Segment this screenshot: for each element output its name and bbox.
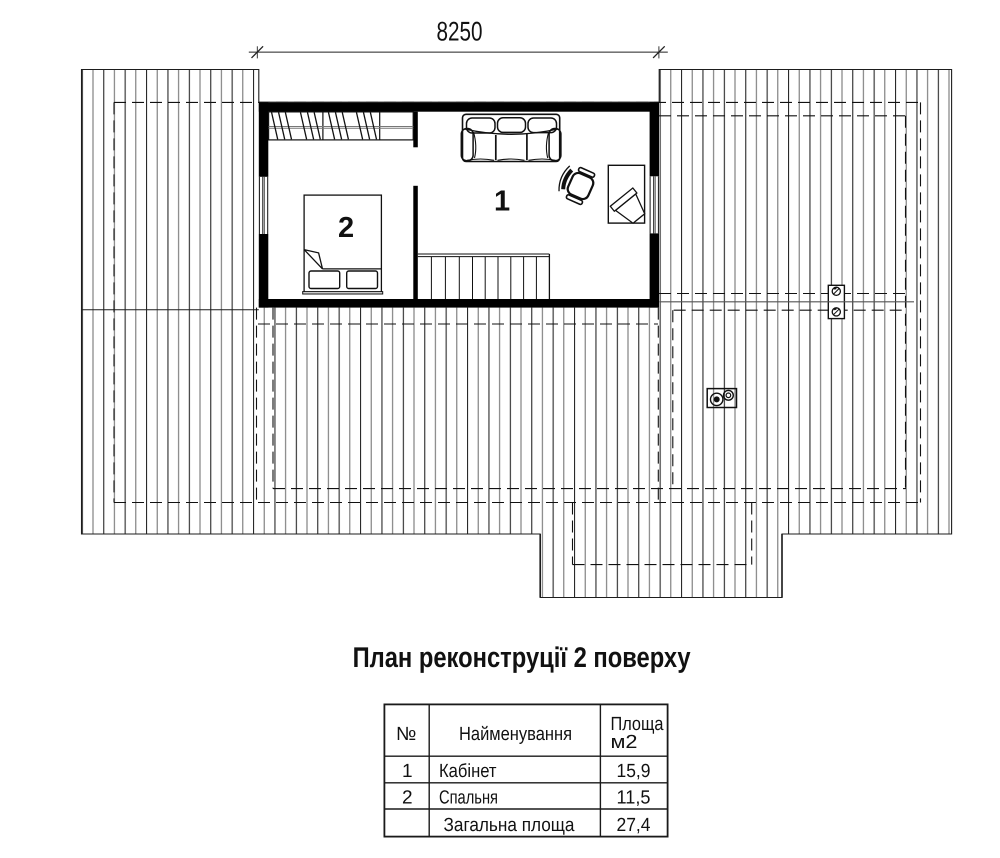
svg-text:2: 2: [402, 788, 413, 809]
svg-text:Кабінет: Кабінет: [439, 761, 497, 782]
svg-text:Найменування: Найменування: [459, 724, 572, 745]
svg-text:1: 1: [402, 761, 413, 782]
svg-text:2: 2: [338, 212, 354, 244]
svg-text:1: 1: [494, 186, 510, 218]
svg-text:8250: 8250: [437, 17, 483, 47]
svg-text:15,9: 15,9: [617, 761, 651, 782]
svg-text:План реконструції 2 поверху: План реконструції 2 поверху: [353, 642, 691, 674]
svg-text:11,5: 11,5: [617, 788, 651, 809]
svg-text:Спальня: Спальня: [439, 788, 498, 809]
svg-text:№: №: [396, 724, 416, 745]
svg-text:Загальна площа: Загальна площа: [444, 815, 575, 836]
svg-text:27,4: 27,4: [617, 815, 651, 836]
svg-text:м2: м2: [611, 732, 638, 753]
